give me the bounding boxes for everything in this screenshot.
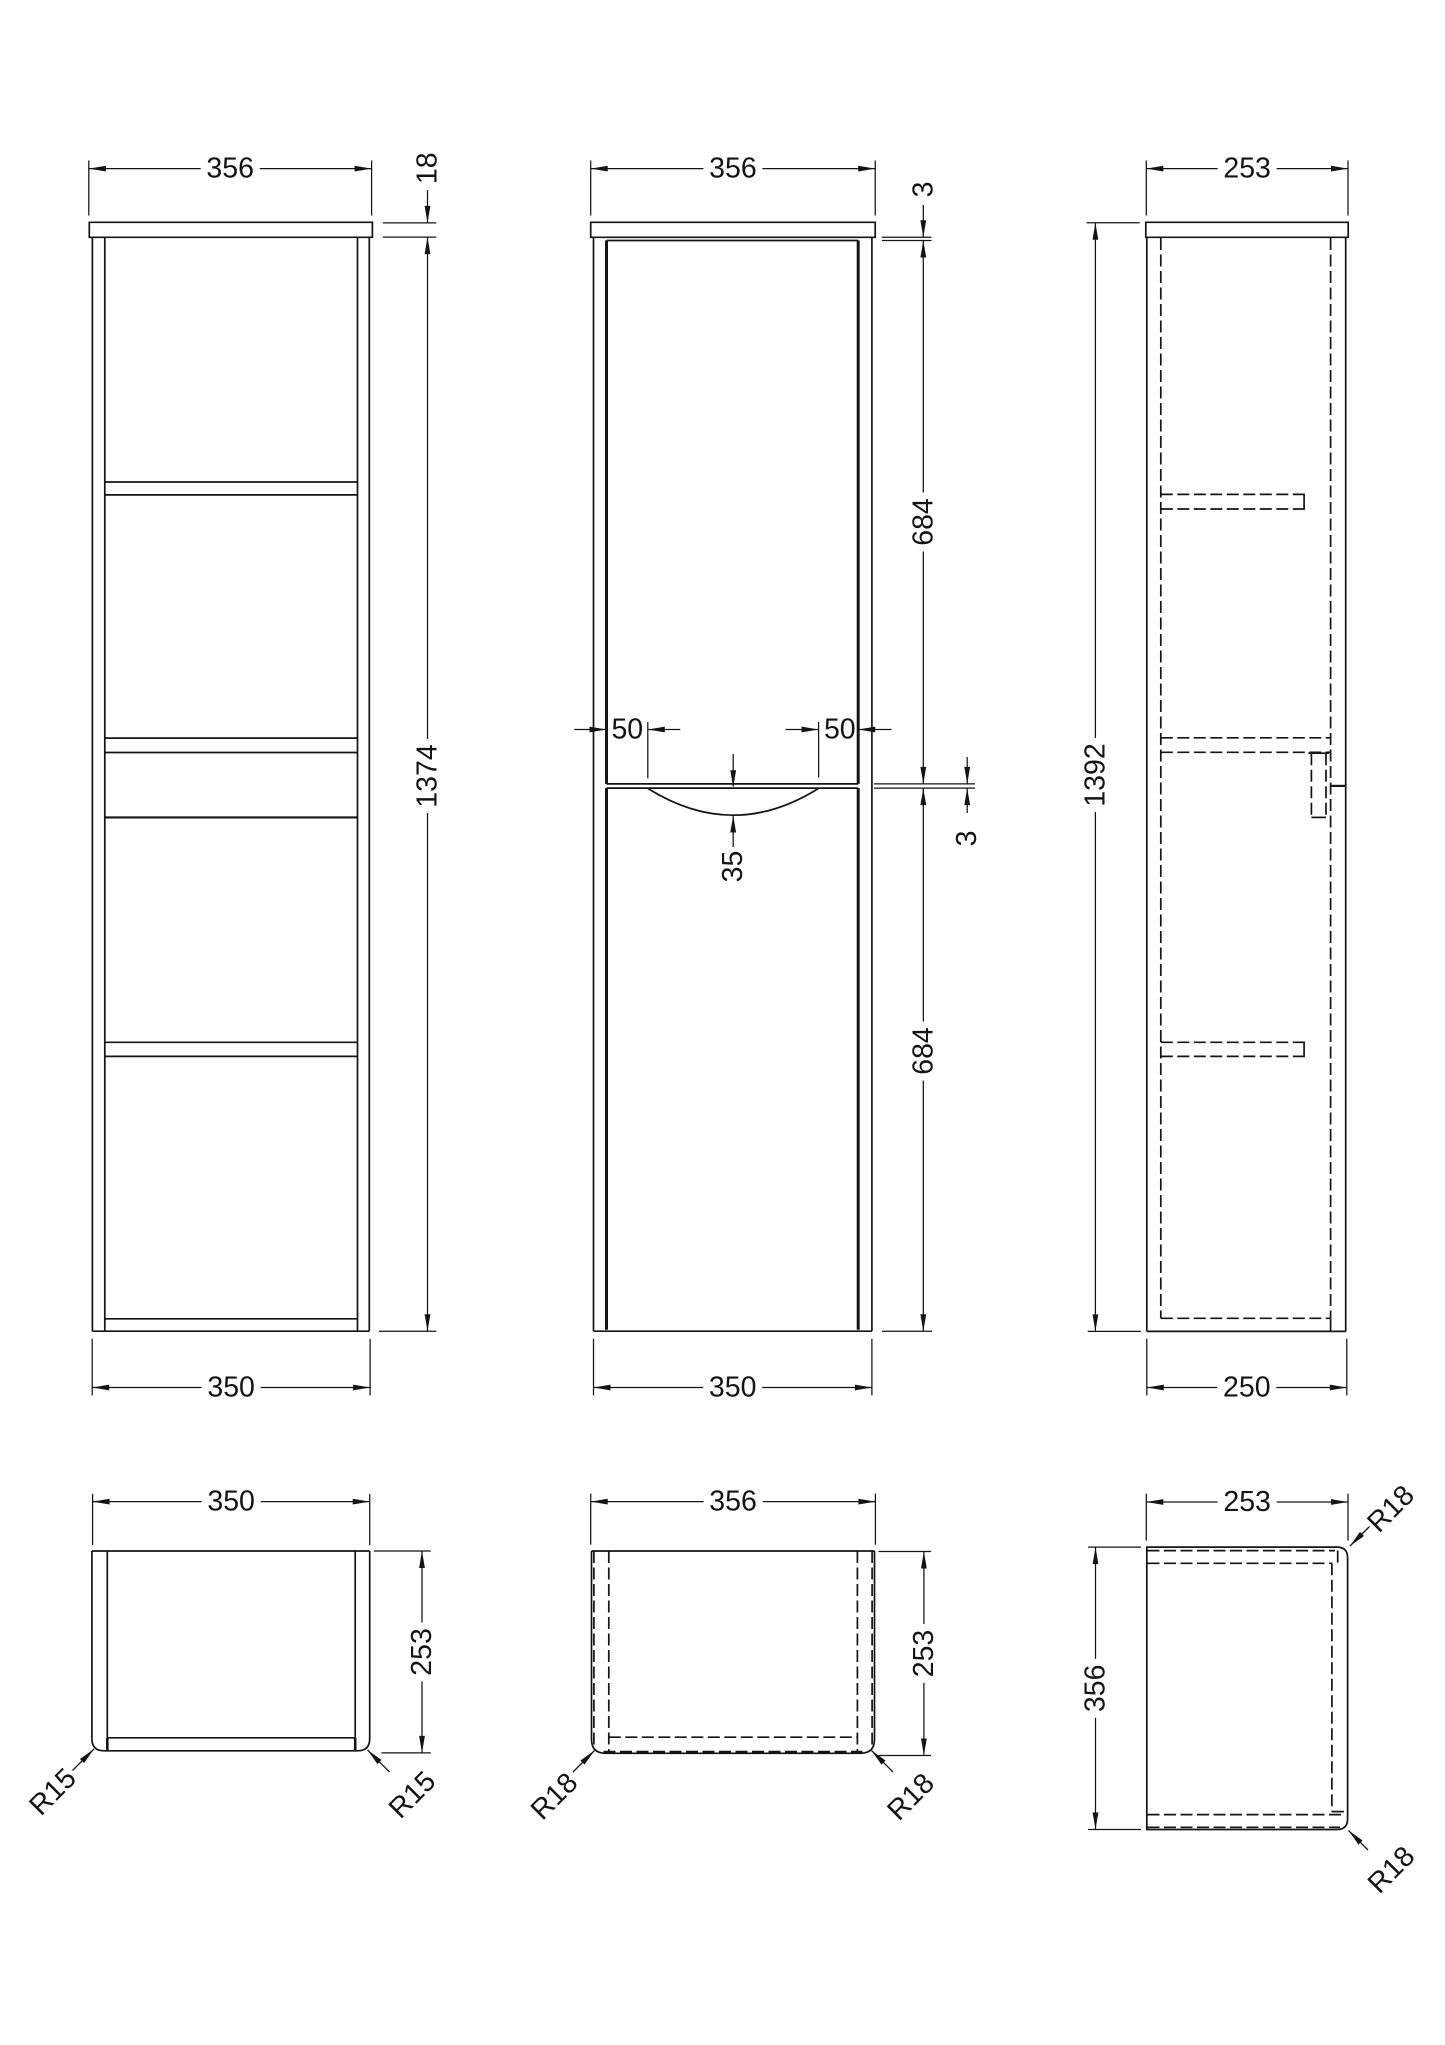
- svg-text:350: 350: [207, 1486, 255, 1518]
- svg-text:253: 253: [1223, 153, 1271, 185]
- svg-text:1392: 1392: [1079, 743, 1111, 806]
- svg-text:253: 253: [406, 1628, 438, 1676]
- svg-text:35: 35: [717, 851, 749, 883]
- svg-text:350: 350: [207, 1372, 255, 1404]
- svg-text:356: 356: [709, 1486, 757, 1518]
- svg-text:18: 18: [412, 152, 444, 184]
- svg-text:684: 684: [907, 1027, 939, 1075]
- svg-text:356: 356: [206, 153, 254, 185]
- svg-text:3: 3: [951, 831, 983, 847]
- svg-text:50: 50: [611, 714, 643, 746]
- svg-text:356: 356: [1080, 1665, 1112, 1713]
- svg-text:3: 3: [907, 182, 939, 198]
- svg-text:1374: 1374: [412, 744, 444, 808]
- svg-text:50: 50: [824, 714, 856, 746]
- svg-text:253: 253: [908, 1630, 940, 1678]
- svg-text:250: 250: [1223, 1372, 1271, 1404]
- svg-text:356: 356: [709, 153, 757, 185]
- svg-text:253: 253: [1223, 1486, 1271, 1518]
- svg-text:350: 350: [709, 1372, 757, 1404]
- svg-text:684: 684: [907, 498, 939, 546]
